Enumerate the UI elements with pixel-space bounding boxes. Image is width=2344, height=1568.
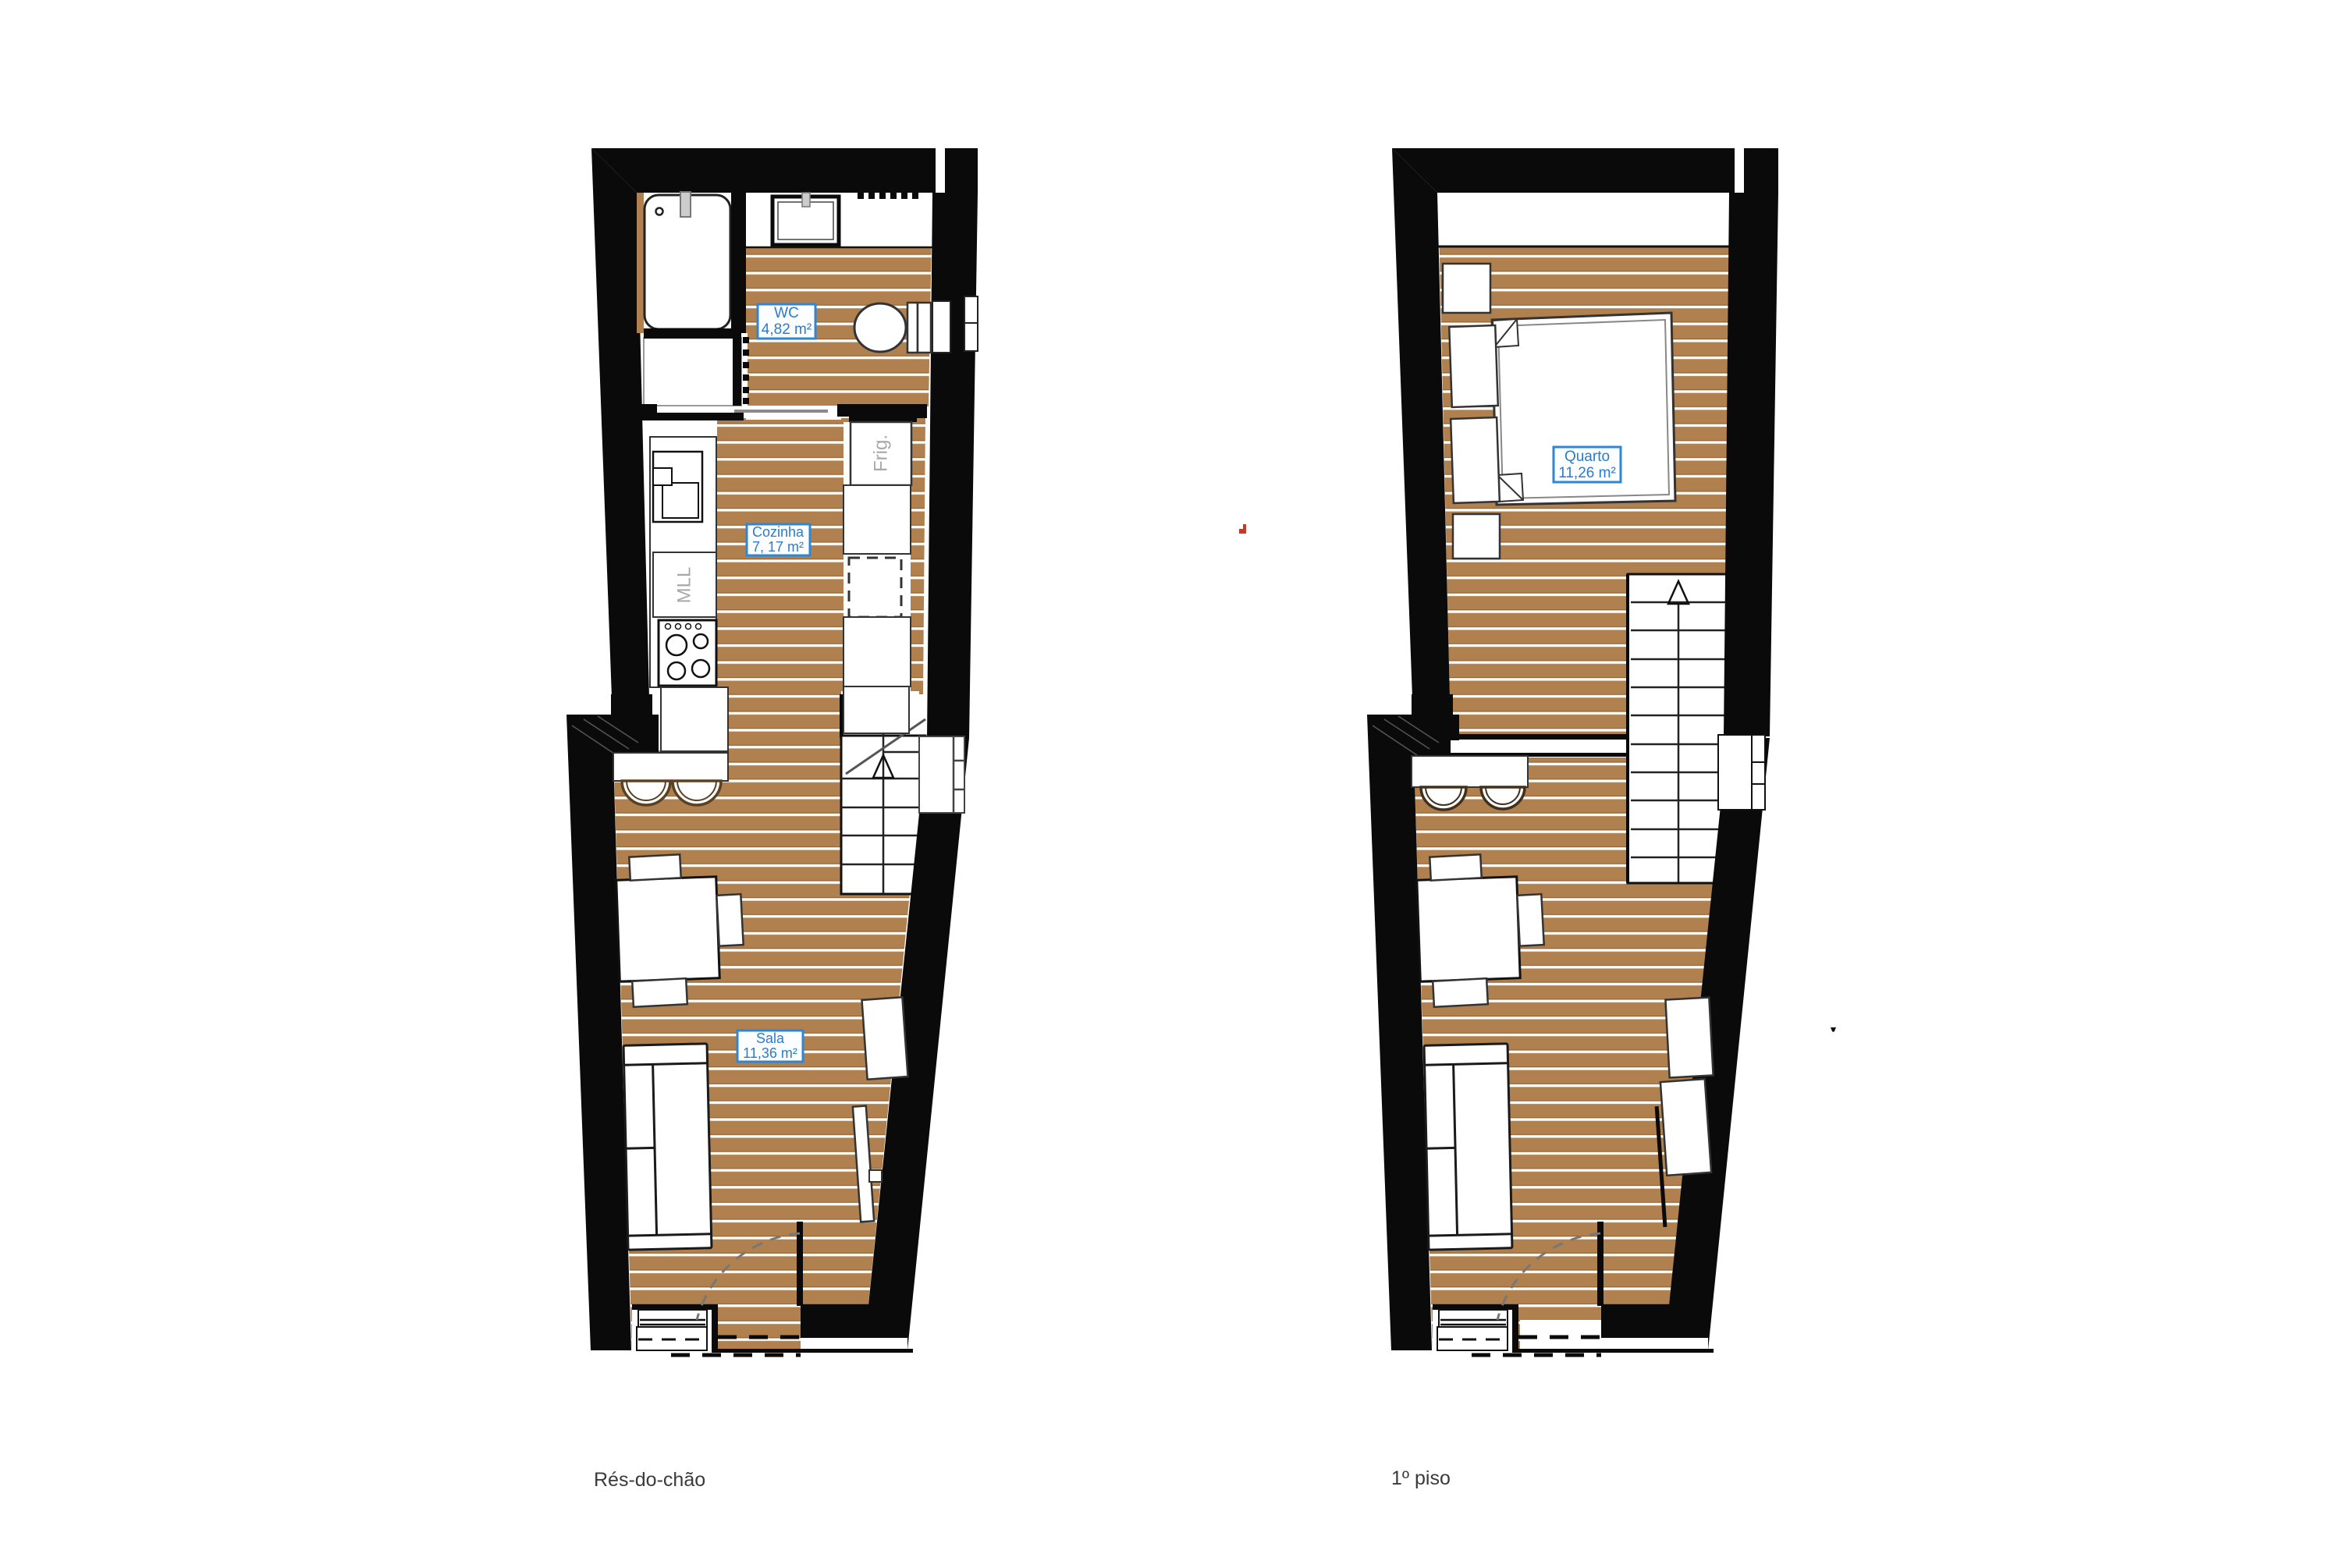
- svg-text:MLL: MLL: [674, 567, 695, 604]
- svg-text:11,36 m²: 11,36 m²: [743, 1045, 797, 1061]
- svg-text:WC: WC: [774, 305, 799, 321]
- svg-text:4,82 m²: 4,82 m²: [762, 321, 812, 338]
- svg-text:Sala: Sala: [756, 1031, 785, 1046]
- svg-text:Frig.: Frig.: [871, 435, 892, 472]
- svg-text:Rés-do-chão: Rés-do-chão: [594, 1469, 705, 1491]
- svg-text:11,26 m²: 11,26 m²: [1558, 465, 1616, 481]
- svg-text:1º piso: 1º piso: [1391, 1467, 1451, 1489]
- svg-text:Cozinha: Cozinha: [752, 524, 804, 540]
- svg-text:7, 17 m²: 7, 17 m²: [752, 539, 804, 555]
- svg-text:Quarto: Quarto: [1564, 449, 1610, 465]
